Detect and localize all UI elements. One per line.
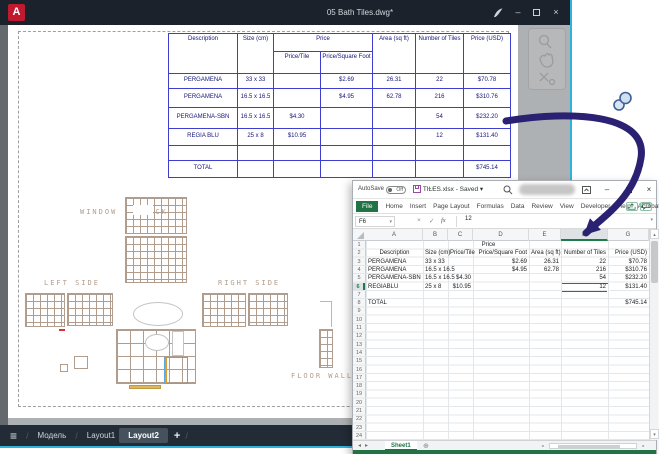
cell-G6[interactable]: $131.40 (608, 283, 649, 291)
table-row: TOTAL$745.14 (169, 161, 511, 178)
tab-layout1[interactable]: Layout1 (83, 429, 119, 442)
tab-layout2[interactable]: Layout2 (119, 428, 168, 443)
cell-F2[interactable]: Number of Tiles (561, 249, 608, 257)
table-row: PERGAMENA16.5 x 16.5$4.9562.78216$310.76 (169, 89, 511, 108)
label-left-side: LEFT SIDE (44, 279, 100, 287)
cad-col-size: Size (cm) (238, 34, 274, 74)
excel-maximize-icon (626, 187, 632, 193)
cad-cell: $4.95 (321, 89, 373, 108)
cell-E4[interactable]: 62.78 (529, 266, 561, 274)
column-header-E[interactable]: E (529, 229, 561, 241)
name-box-dropdown-icon[interactable]: ▾ (389, 217, 392, 227)
cell-B3[interactable]: 33 x 33 (423, 258, 448, 266)
cell-F5[interactable]: 54 (561, 274, 608, 282)
share-icon[interactable] (626, 202, 638, 211)
cell-B6[interactable]: 25 x 8 (423, 283, 448, 291)
cad-cell: REGIA BLU (169, 129, 238, 146)
status-bar (353, 450, 656, 454)
cell-A3[interactable]: PERGAMENA (366, 258, 423, 266)
cell-G5[interactable]: $232.20 (608, 274, 649, 282)
tab-separator: / (26, 431, 29, 441)
navigation-bar[interactable] (528, 28, 566, 90)
cell-F4[interactable]: 216 (561, 266, 608, 274)
toilet-tank-outline (172, 331, 184, 356)
cell-C2[interactable]: Price/Tile (448, 249, 473, 257)
cad-cell (464, 146, 511, 161)
excel-window: AutoSave Off ⋯ TILES.xlsx - Saved ▾ – × … (352, 180, 657, 454)
cad-cell (373, 161, 416, 178)
cell-D3[interactable]: $2.69 (473, 258, 529, 266)
ribbon-tab-insert[interactable]: Insert (410, 203, 426, 210)
tab-separator: / (185, 431, 188, 441)
table-row: PERGAMENA-SBN16.5 x 16.5$4.3054$232.20 (169, 108, 511, 129)
excel-close-button[interactable]: × (641, 181, 657, 198)
label-window: WINDOW (80, 208, 117, 216)
autosave-label: AutoSave (358, 186, 384, 192)
autocad-logo-icon[interactable]: A (8, 4, 25, 21)
cell-C5[interactable]: $4.30 (448, 274, 473, 282)
cell-C6[interactable]: $10.95 (448, 283, 473, 291)
ribbon-tab-view[interactable]: View (560, 203, 574, 210)
select-all-icon[interactable] (357, 232, 364, 239)
excel-document-title[interactable]: TILES.xlsx - Saved ▾ (383, 185, 523, 193)
cell-B5[interactable]: 16.5 x 16.5 (423, 274, 448, 282)
cell-A2[interactable]: Description (366, 249, 423, 257)
label-right-side: RIGHT SIDE (218, 279, 280, 287)
link-rings-icon[interactable] (610, 90, 636, 114)
left-side-grid-b (67, 293, 113, 326)
back-wall-grid-bottom (125, 236, 187, 283)
ribbon-tab-review[interactable]: Review (531, 203, 552, 210)
cell-E2[interactable]: Area (sq ft) (529, 249, 561, 257)
worksheet-grid[interactable]: PriceDescriptionSize (cm)Price/TilePrice… (353, 241, 649, 441)
cad-cell (274, 89, 321, 108)
cad-cell (373, 108, 416, 129)
autocad-window-title: 05 Bath Tiles.dwg* (280, 0, 440, 25)
ribbon-tab-developer[interactable]: Developer (581, 203, 611, 210)
cad-cell (321, 129, 373, 146)
cell-B4[interactable]: 16.5 x 16.5 (423, 266, 448, 274)
cad-cell: 33 x 33 (238, 74, 274, 89)
cad-cell: 16.5 x 16.5 (238, 89, 274, 108)
cad-col-tiles: Number of Tiles (416, 34, 464, 74)
cad-cell (321, 146, 373, 161)
cad-cell: 16.5 x 16.5 (238, 108, 274, 129)
cad-cell: 26.31 (373, 74, 416, 89)
cad-cell: 12 (416, 129, 464, 146)
table-row: PERGAMENA33 x 33$2.6926.3122$70.78 (169, 74, 511, 89)
wall-hook-outline (320, 301, 332, 327)
new-layout-button[interactable]: + (174, 430, 180, 442)
cad-cell: 54 (416, 108, 464, 129)
search-icon[interactable] (503, 185, 513, 195)
cad-cell: PERGAMENA (169, 74, 238, 89)
horizontal-scrollbar[interactable] (549, 443, 637, 449)
column-headers: ABCDEFG (353, 229, 649, 241)
column-header-A[interactable]: A (366, 229, 423, 241)
grid-notch (133, 205, 153, 215)
maximize-icon (533, 9, 540, 16)
cancel-icon[interactable]: × (417, 217, 421, 224)
horizontal-scroll-thumb[interactable] (558, 445, 620, 449)
cell-D4[interactable]: $4.95 (473, 266, 529, 274)
navbar-icons (529, 29, 565, 89)
cad-cell: 62.78 (373, 89, 416, 108)
cell-C1[interactable]: Price (448, 241, 529, 249)
cell-F3[interactable]: 22 (561, 258, 608, 266)
cad-cell (321, 108, 373, 129)
autocad-titlebar: A 05 Bath Tiles.dwg* – × (0, 0, 572, 25)
formula-bar-expand-icon[interactable]: ▾ (650, 217, 653, 223)
cell-F6[interactable]: 12 (561, 283, 608, 291)
column-header-F[interactable]: F (561, 229, 608, 241)
comments-icon[interactable] (640, 202, 652, 211)
cad-col-area: Area (sq ft) (373, 34, 416, 74)
user-account-blur (519, 184, 575, 195)
cell-A6[interactable]: REGIABLU (366, 283, 423, 291)
label-floor-wall: FLOOR WALL (291, 372, 353, 380)
autocad-left-frame (0, 25, 8, 425)
cad-cell (274, 161, 321, 178)
cad-cell (238, 146, 274, 161)
column-header-D[interactable]: D (473, 229, 529, 241)
formula-bar-value[interactable]: 12 (465, 216, 472, 222)
cell-D2[interactable]: Price/Square Foot (473, 249, 529, 257)
sheet-tab-bar: ◂▸ Sheet1 ⊕ ◂ ▸ (353, 440, 656, 450)
name-box[interactable]: F6▾ (355, 216, 395, 227)
tab-separator: / (75, 431, 78, 441)
cad-cell: $70.78 (464, 74, 511, 89)
cad-cell: $232.20 (464, 108, 511, 129)
cell-A4[interactable]: PERGAMENA (366, 266, 423, 274)
red-mark (59, 329, 65, 331)
column-header-C[interactable]: C (448, 229, 473, 241)
cad-cell: 22 (416, 74, 464, 89)
small-square-outline (74, 356, 88, 369)
cad-price-table[interactable]: Description Size (cm) Price Area (sq ft)… (168, 33, 511, 178)
right-side-grid-b (248, 293, 288, 326)
table-row (169, 146, 511, 161)
toilet-bowl-outline (145, 334, 169, 351)
screenshot-stage: A 05 Bath Tiles.dwg* – × (0, 0, 659, 454)
cad-cell (373, 129, 416, 146)
close-button[interactable]: × (547, 0, 565, 25)
cell-G4[interactable]: $310.76 (608, 266, 649, 274)
bathtub-oval (133, 302, 183, 326)
cad-cell: $2.69 (321, 74, 373, 89)
ribbon-tab-bar: FileHomeInsertPage LayoutFormulasDataRev… (353, 199, 656, 214)
cell-G2[interactable]: Price (USD) (608, 249, 649, 257)
yellow-trim-bar (129, 385, 161, 389)
tiny-square-outline (60, 364, 68, 372)
cad-cell (416, 161, 464, 178)
cad-cell (238, 161, 274, 178)
cad-cell (169, 146, 238, 161)
column-header-G[interactable]: G (608, 229, 649, 241)
cad-cell: PERGAMENA-SBN (169, 108, 238, 129)
right-side-grid-a (202, 293, 246, 327)
ribbon-tab-formulas[interactable]: Formulas (477, 203, 504, 210)
cad-cell: TOTAL (169, 161, 238, 178)
scroll-right-icon[interactable]: ▸ (640, 443, 647, 449)
cad-cell: $10.95 (274, 129, 321, 146)
maximize-button[interactable] (527, 0, 545, 25)
enter-check-icon[interactable]: ✓ (429, 217, 434, 225)
scroll-down-icon[interactable]: ▾ (650, 429, 659, 439)
back-wall-grid-top (125, 197, 187, 234)
new-sheet-button[interactable]: ⊕ (423, 442, 429, 450)
cell-A8[interactable]: TOTAL (366, 299, 423, 307)
cell-B2[interactable]: Size (cm) (423, 249, 448, 257)
cad-cell (416, 146, 464, 161)
excel-maximize-button[interactable] (621, 181, 637, 198)
cad-cell: $745.14 (464, 161, 511, 178)
cad-cell: $310.76 (464, 89, 511, 108)
cell-G3[interactable]: $70.78 (608, 258, 649, 266)
cad-cell: $4.30 (274, 108, 321, 129)
cad-col-description: Description (169, 34, 238, 74)
tab-model[interactable]: Модель (34, 429, 71, 442)
cell-G8[interactable]: $745.14 (608, 299, 649, 307)
insert-function-icon[interactable]: fx (441, 217, 446, 224)
ribbon-tab-page-layout[interactable]: Page Layout (433, 203, 470, 210)
ribbon-tab-file[interactable]: File (356, 201, 378, 212)
ribbon-display-options-icon[interactable] (582, 186, 591, 194)
cad-cell: PERGAMENA (169, 89, 238, 108)
formula-bar: F6▾ × ✓ fx 12 ▾ (353, 214, 656, 229)
cad-col-price: Price (274, 34, 373, 52)
scroll-up-icon[interactable]: ▴ (650, 229, 659, 239)
excel-titlebar: AutoSave Off ⋯ TILES.xlsx - Saved ▾ – × (353, 181, 656, 199)
cell-A5[interactable]: PERGAMENA-SBN (366, 274, 423, 282)
selected-tile-highlight[interactable] (164, 357, 188, 384)
cad-cell: $131.40 (464, 129, 511, 146)
pin-icon[interactable] (492, 7, 504, 19)
ribbon-tab-home[interactable]: Home (385, 203, 402, 210)
left-side-grid-a (25, 293, 65, 327)
cad-col-price-sqft: Price/Square Foot (321, 52, 373, 74)
cad-cell: 25 x 8 (238, 129, 274, 146)
cad-cell (274, 74, 321, 89)
cell-E3[interactable]: 26.31 (529, 258, 561, 266)
vertical-scrollbar[interactable]: ▴ ▾ (649, 229, 658, 440)
cad-cell (373, 146, 416, 161)
formula-divider (456, 216, 457, 227)
ribbon-tab-data[interactable]: Data (511, 203, 525, 210)
table-row: REGIA BLU25 x 8$10.9512$131.40 (169, 129, 511, 146)
sheet-nav-arrows[interactable]: ◂▸ (358, 442, 372, 449)
menu-icon[interactable]: ≡ (10, 429, 17, 443)
cad-cell: 216 (416, 89, 464, 108)
cad-col-price-usd: Price (USD) (464, 34, 511, 74)
minimize-button[interactable]: – (509, 0, 527, 25)
column-header-B[interactable]: B (423, 229, 448, 241)
vertical-scroll-thumb[interactable] (651, 241, 658, 283)
cad-cell (321, 161, 373, 178)
cad-col-price-tile: Price/Tile (274, 52, 321, 74)
excel-minimize-button[interactable]: – (599, 181, 615, 198)
cad-cell (274, 146, 321, 161)
scroll-left-icon[interactable]: ◂ (539, 443, 546, 449)
right-wall-strip-grid (319, 329, 333, 368)
